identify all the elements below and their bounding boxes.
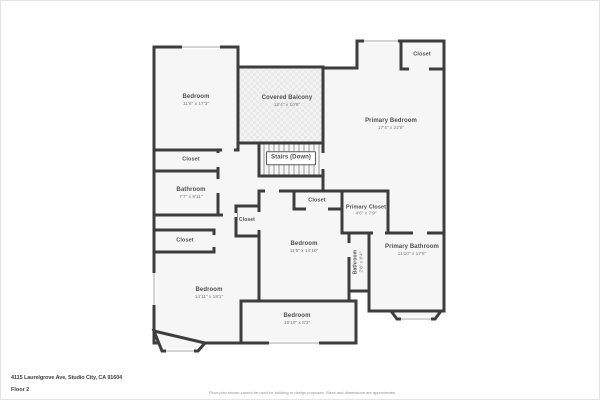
walls-group	[154, 41, 444, 351]
room-primary-closet	[342, 191, 388, 233]
property-address: 4115 Laurelgrove Ave, Studio City, CA 91…	[11, 375, 122, 381]
room-closet-lower-left	[154, 230, 214, 252]
floor-label: Floor 2	[11, 387, 29, 393]
room-closet-upper-left	[154, 150, 218, 171]
room-primary-bathroom	[369, 233, 444, 311]
room-bathroom-left	[154, 171, 218, 215]
room-closet-center	[294, 191, 342, 209]
room-closet-hall	[236, 206, 259, 236]
room-closet-primary-corner	[401, 41, 444, 69]
disclaimer-text: Floor plan shown cannot be used for buil…	[209, 390, 396, 395]
floor-plan-page: Bedroom 11'6" x 17'3" Covered Balcony 12…	[0, 0, 600, 400]
room-bedroom-bottom	[241, 301, 356, 343]
room-bedroom-top-left	[154, 47, 238, 150]
room-bathroom-small	[349, 233, 369, 291]
room-covered-balcony	[238, 67, 323, 143]
floor-plan-drawing	[1, 1, 600, 400]
